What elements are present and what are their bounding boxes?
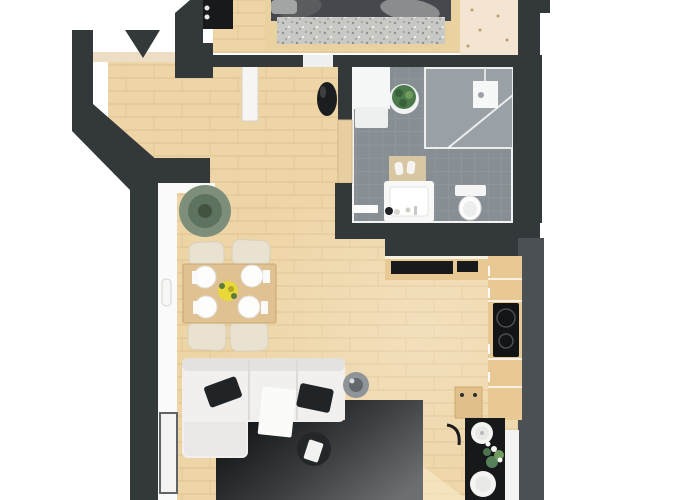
wall-handle	[162, 279, 171, 306]
plywood-knot-2	[497, 15, 500, 18]
wall-bath-south	[335, 223, 540, 239]
kitchen-flower-3	[486, 442, 491, 447]
wall-bath-west-a	[338, 65, 352, 120]
flower-leaf-1	[219, 283, 225, 289]
plywood-knot-3	[479, 29, 482, 32]
wall-bath-west-b	[335, 183, 352, 228]
leaning-art-frame	[160, 413, 177, 493]
vanity-soap	[394, 209, 400, 215]
counter-gap-2	[488, 300, 522, 302]
wall-top-b	[333, 55, 518, 67]
page: { "canvas": { "width": 700, "height": 50…	[0, 0, 700, 500]
bath-plant-leaf-2	[405, 91, 413, 99]
tv-knob-2	[205, 15, 210, 20]
counter-gap-1	[488, 278, 522, 280]
vanity-tap	[414, 206, 417, 215]
bedroom-doorway	[303, 55, 333, 67]
dining-chair-bottom-left	[188, 320, 227, 350]
shower-head-unit	[473, 81, 498, 108]
kitchen-plant-leaf-3	[483, 448, 491, 456]
toilet-tank	[455, 185, 486, 196]
plywood-knot-5	[467, 45, 470, 48]
kitchen-counter-top-edge	[385, 256, 497, 259]
round-sink-drain	[480, 431, 484, 435]
black-vase	[317, 82, 337, 116]
wall-top-a	[213, 55, 303, 67]
cabinet-knob-1	[460, 393, 464, 397]
cabinet-handle-2	[488, 288, 490, 298]
floor-hall	[215, 56, 338, 190]
bathroom-door	[338, 120, 352, 183]
white-vase-mouth	[475, 476, 491, 492]
kitchen-appliance-black	[457, 261, 478, 272]
kitchen-sink-black-strip	[391, 261, 453, 274]
wall-branch	[148, 158, 210, 183]
napkin-3	[193, 301, 200, 314]
cabinet-handle-4	[488, 372, 490, 382]
toilet-seat	[463, 201, 477, 217]
throw-blanket	[258, 386, 297, 437]
bed-pillow	[271, 0, 297, 14]
napkin-1	[192, 271, 199, 284]
window-sill-strip	[505, 430, 519, 500]
bath-drain-dot	[385, 207, 393, 215]
lower-cabinet	[455, 387, 482, 418]
sofa-backrest	[182, 358, 345, 371]
floorplan-shapes	[0, 0, 700, 500]
napkin-4	[261, 301, 268, 314]
vanity-cup	[406, 208, 411, 213]
hall-plant-core	[198, 204, 212, 218]
flower-leaf-2	[231, 293, 237, 299]
entry-threshold	[93, 52, 177, 62]
counter-gap-4	[488, 386, 522, 388]
black-vase-highlight	[320, 86, 326, 98]
dining-chair-bottom-right	[229, 320, 268, 351]
floorplan-svg	[0, 0, 700, 500]
cabinet-knob-2	[473, 393, 477, 397]
wall-right-bath	[513, 55, 542, 223]
bathroom-washer	[352, 65, 390, 109]
bath-plant-leaf-3	[399, 99, 407, 107]
wall-right-upper	[518, 13, 540, 58]
tv-knob-1	[205, 6, 210, 11]
bed-shag-rug	[277, 17, 445, 44]
kitchen-flower-2	[498, 458, 503, 463]
bathroom-towel	[355, 107, 388, 128]
cabinet-handle-1	[488, 266, 490, 276]
kitchen-flower-1	[491, 446, 497, 452]
slipper-2	[406, 161, 415, 175]
shower-head-dot	[478, 92, 484, 98]
floorplan-stage	[0, 0, 700, 500]
wall-left	[130, 158, 158, 500]
counter-gap-3	[488, 358, 522, 360]
floor-lamp-highlight	[350, 379, 355, 384]
wall-right-top	[518, 0, 550, 13]
plate-4	[238, 296, 260, 318]
napkin-2	[263, 270, 270, 283]
flower-shade	[228, 286, 234, 292]
plate-2	[241, 265, 263, 287]
cooktop	[493, 303, 519, 357]
bath-plant-leaf-1	[395, 89, 403, 97]
plywood-knot-1	[471, 9, 474, 12]
bedroom-tv-unit	[200, 0, 233, 29]
shower-cabin	[425, 68, 513, 148]
plywood-knot-4	[506, 39, 509, 42]
cabinet-handle-3	[488, 344, 490, 354]
dining-chair-top-right	[231, 239, 270, 267]
